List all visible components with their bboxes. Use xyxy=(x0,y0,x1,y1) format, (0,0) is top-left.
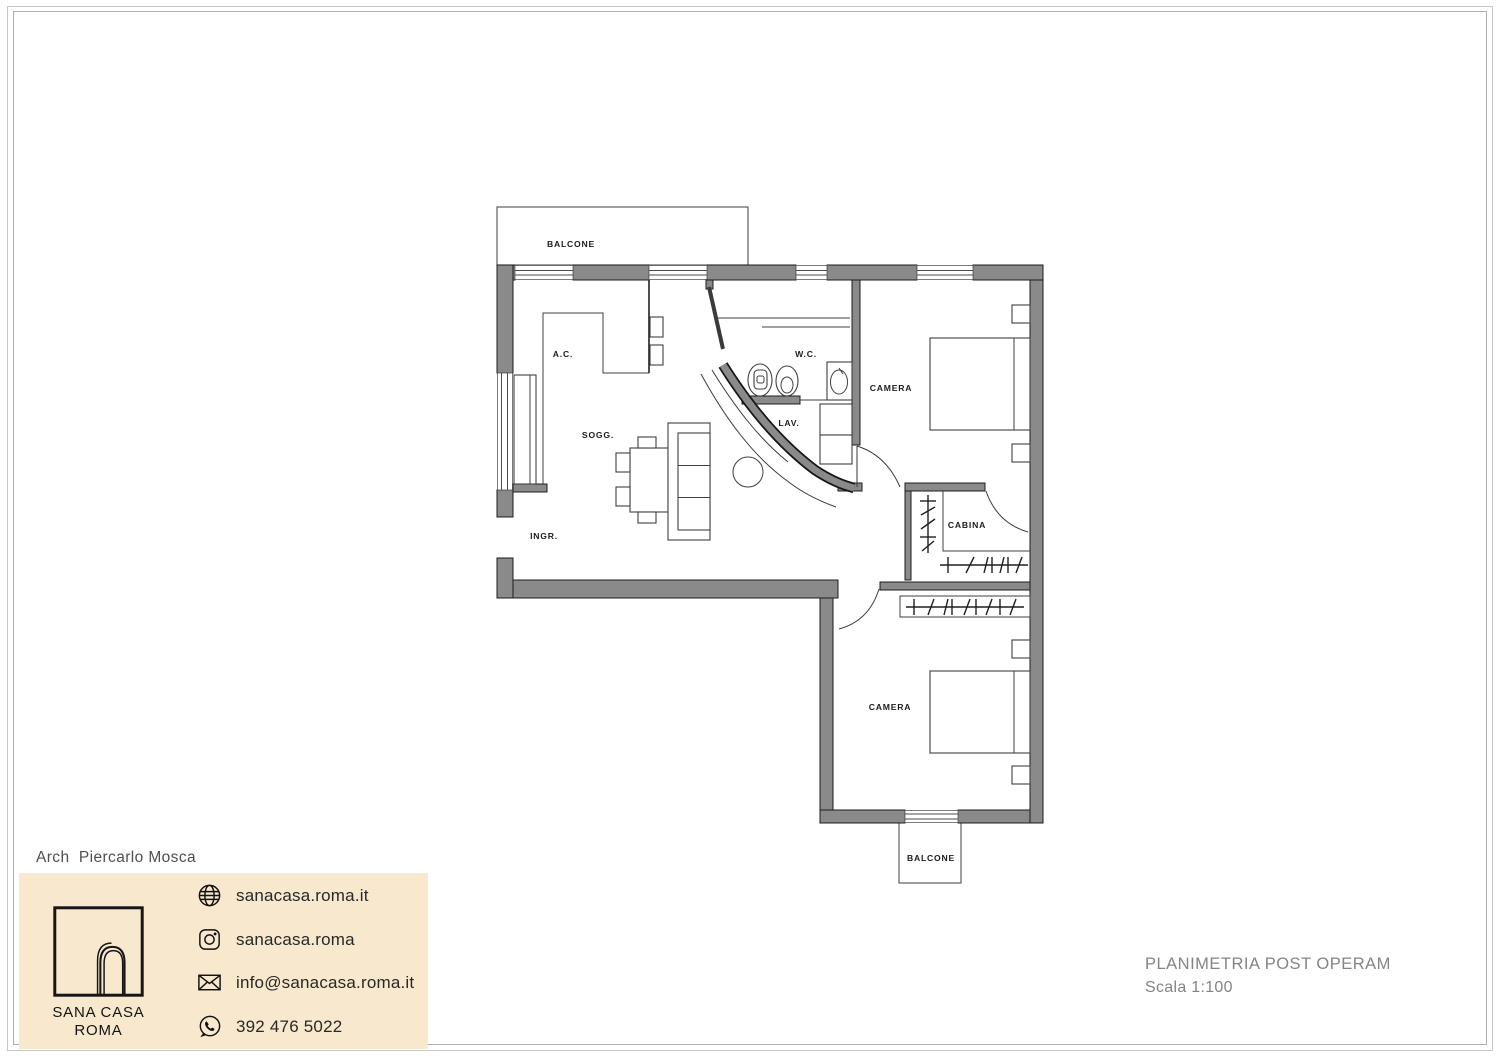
bed-top xyxy=(930,305,1030,462)
balcony-top: BALCONE xyxy=(497,207,748,265)
window xyxy=(796,266,827,280)
drawing-info: PLANIMETRIA POST OPERAM Scala 1:100 xyxy=(1145,955,1391,997)
window xyxy=(515,266,573,280)
architect-name: Arch Piercarlo Mosca xyxy=(36,849,196,867)
window xyxy=(498,373,513,490)
whatsapp-icon xyxy=(196,1013,223,1040)
room-label-cabina: CABINA xyxy=(948,520,986,530)
bath-cabinet xyxy=(820,404,852,464)
brand-name-line2: ROMA xyxy=(36,1022,161,1039)
balcony-bottom: BALCONE xyxy=(899,821,961,883)
brand-name-line1: SANA CASA xyxy=(36,1004,161,1021)
window xyxy=(649,266,707,280)
email-icon xyxy=(196,969,223,996)
room-label-wc: W.C. xyxy=(795,349,817,359)
drawing-scale: Scala 1:100 xyxy=(1145,979,1391,997)
contact-instagram: sanacasa.roma xyxy=(196,926,355,953)
drawing-sheet: BALCONE BALCONE xyxy=(0,0,1500,1057)
bed-bottom xyxy=(930,640,1030,784)
window xyxy=(917,266,973,280)
dining-table xyxy=(616,437,668,523)
room-label-camera-bottom: CAMERA xyxy=(869,702,912,712)
round-table xyxy=(733,457,763,487)
window xyxy=(905,811,958,823)
room-label-lav: LAV. xyxy=(778,418,799,428)
door-camera-bottom xyxy=(839,589,879,629)
contact-instagram-label: sanacasa.roma xyxy=(236,930,355,950)
contact-email-label: info@sanacasa.roma.it xyxy=(236,973,414,993)
sofa xyxy=(668,423,710,540)
contact-phone-label: 392 476 5022 xyxy=(236,1017,342,1037)
shower-enclosure xyxy=(716,318,850,327)
instagram-icon xyxy=(196,926,223,953)
room-label-balcone-top: BALCONE xyxy=(547,239,595,249)
contact-website: sanacasa.roma.it xyxy=(196,882,369,909)
radiator xyxy=(514,375,536,484)
brand-logo xyxy=(52,905,145,998)
contact-email: info@sanacasa.roma.it xyxy=(196,969,414,996)
globe-icon xyxy=(196,882,223,909)
contact-phone: 392 476 5022 xyxy=(196,1013,342,1040)
sink-icon xyxy=(800,362,852,400)
room-label-sogg: SOGG. xyxy=(582,430,614,440)
room-label-ingr: INGR. xyxy=(530,531,558,541)
room-label-ac: A.C. xyxy=(553,349,573,359)
room-label-balcone-bottom: BALCONE xyxy=(907,853,955,863)
cabina-interior xyxy=(920,491,1030,573)
contact-website-label: sanacasa.roma.it xyxy=(236,886,369,906)
bidet-icon xyxy=(776,366,798,396)
toilet-icon xyxy=(748,364,772,396)
wardrobe-camera-bottom xyxy=(900,596,1030,617)
door-camera-top xyxy=(857,446,900,487)
room-label-camera-top: CAMERA xyxy=(870,383,913,393)
drawing-title: PLANIMETRIA POST OPERAM xyxy=(1145,955,1391,974)
